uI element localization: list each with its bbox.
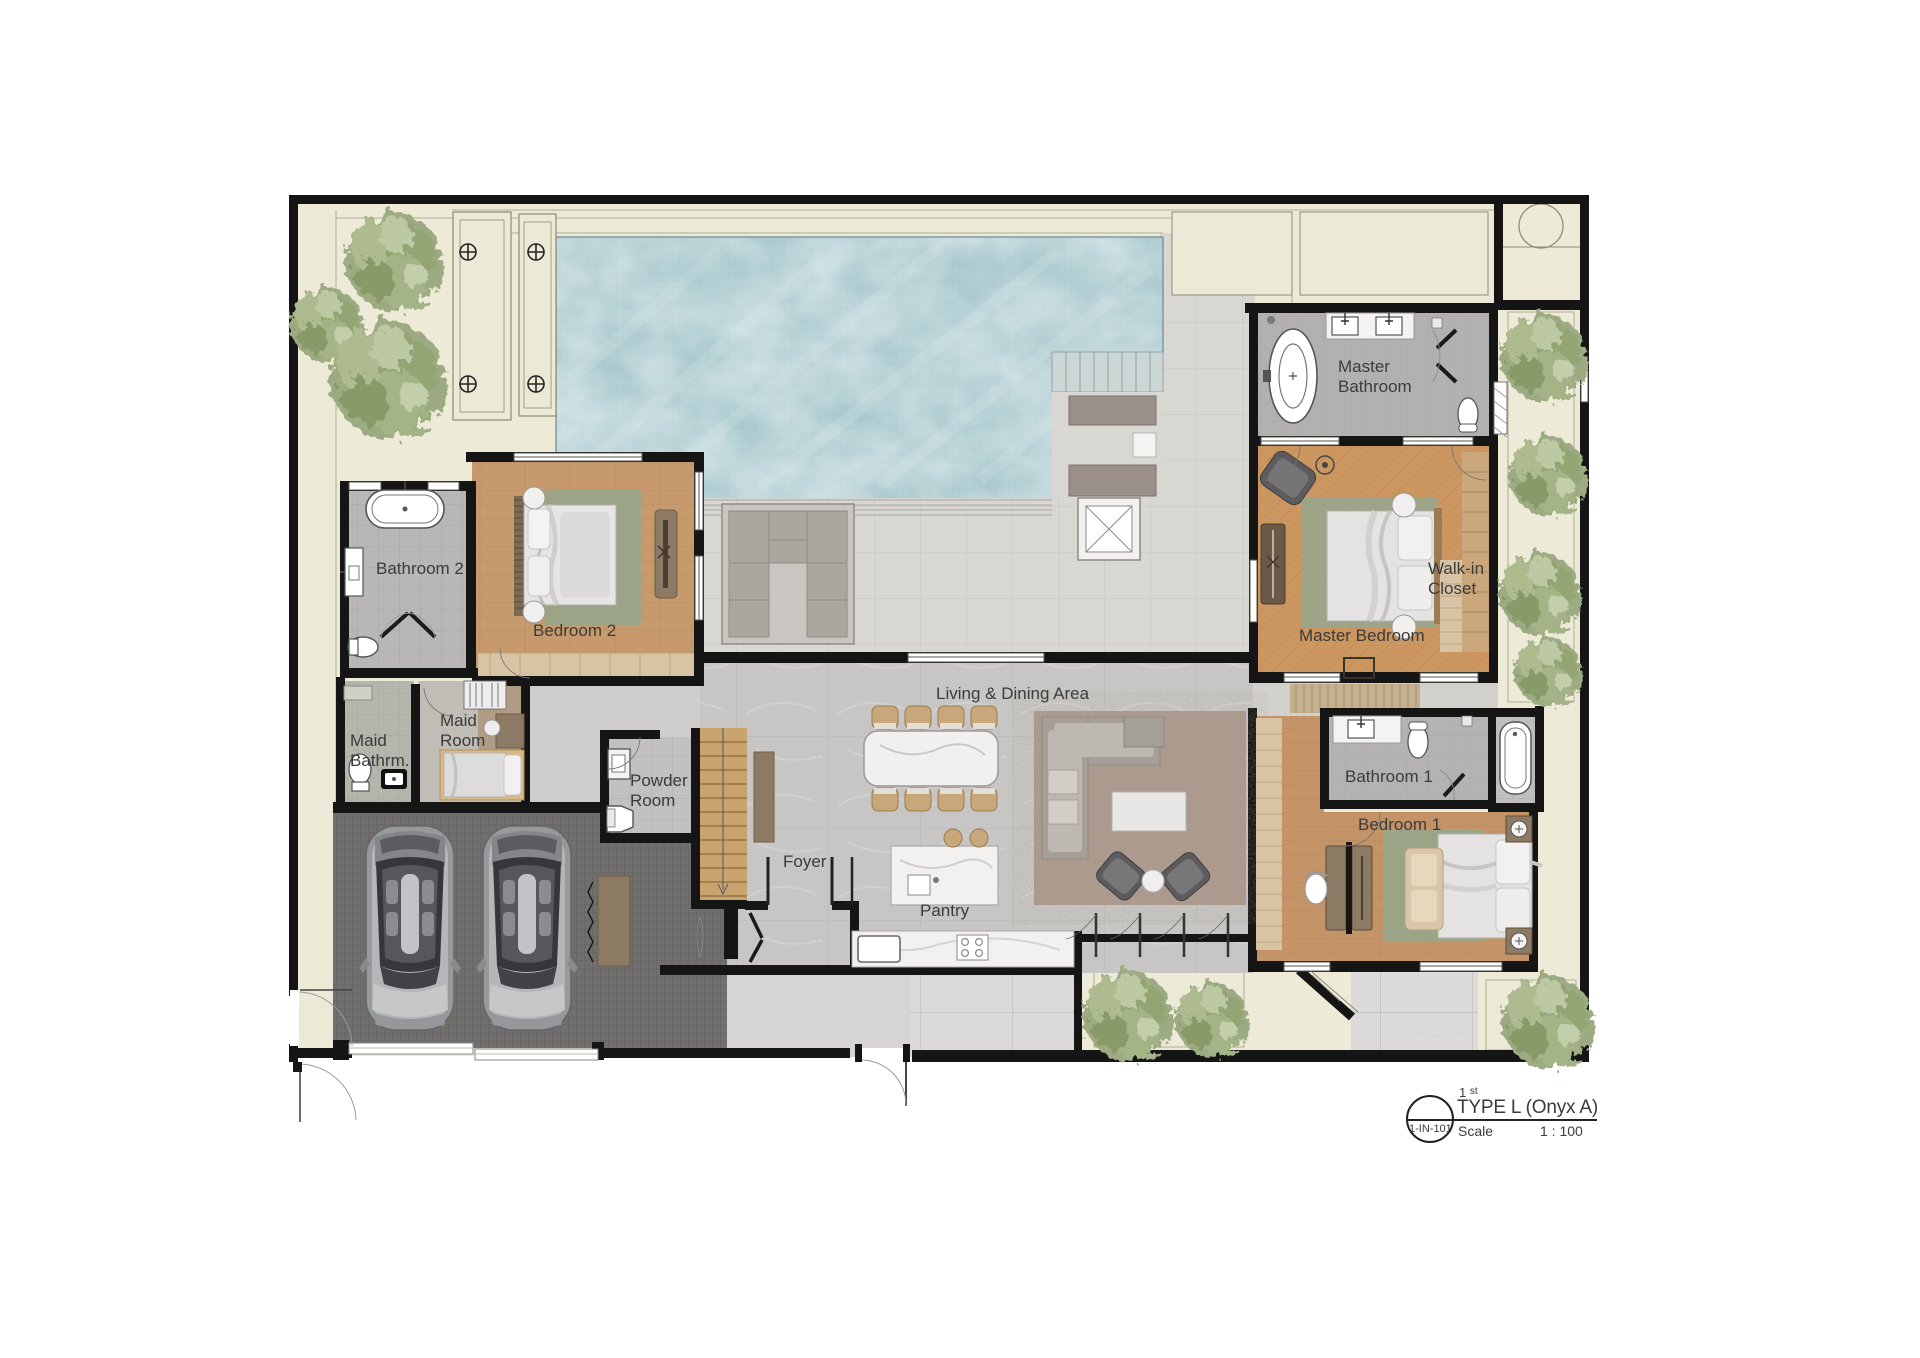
svg-text:Maid: Maid bbox=[350, 731, 387, 750]
svg-text:Scale: Scale bbox=[1458, 1123, 1493, 1139]
svg-text:Bathroom 2: Bathroom 2 bbox=[376, 559, 464, 578]
svg-text:Master Bedroom: Master Bedroom bbox=[1299, 626, 1425, 645]
svg-text:Pantry: Pantry bbox=[920, 901, 970, 920]
svg-text:1 : 100: 1 : 100 bbox=[1540, 1123, 1583, 1139]
svg-text:Master: Master bbox=[1338, 357, 1390, 376]
svg-text:Bedroom 2: Bedroom 2 bbox=[533, 621, 616, 640]
svg-text:Bedroom 1: Bedroom 1 bbox=[1358, 815, 1441, 834]
svg-text:1-IN-101: 1-IN-101 bbox=[1409, 1123, 1452, 1135]
svg-text:Bathrm.: Bathrm. bbox=[350, 751, 410, 770]
svg-text:Walk-in: Walk-in bbox=[1428, 559, 1484, 578]
svg-text:Powder: Powder bbox=[630, 771, 688, 790]
svg-text:Bathroom 1: Bathroom 1 bbox=[1345, 767, 1433, 786]
svg-text:Maid: Maid bbox=[440, 711, 477, 730]
svg-text:Foyer: Foyer bbox=[783, 852, 827, 871]
svg-text:Bathroom: Bathroom bbox=[1338, 377, 1412, 396]
svg-text:Closet: Closet bbox=[1428, 579, 1476, 598]
svg-text:TYPE L (Onyx A): TYPE L (Onyx A) bbox=[1457, 1097, 1598, 1118]
svg-text:Room: Room bbox=[630, 791, 675, 810]
svg-text:Room: Room bbox=[440, 731, 485, 750]
svg-text:Living & Dining Area: Living & Dining Area bbox=[936, 684, 1090, 703]
